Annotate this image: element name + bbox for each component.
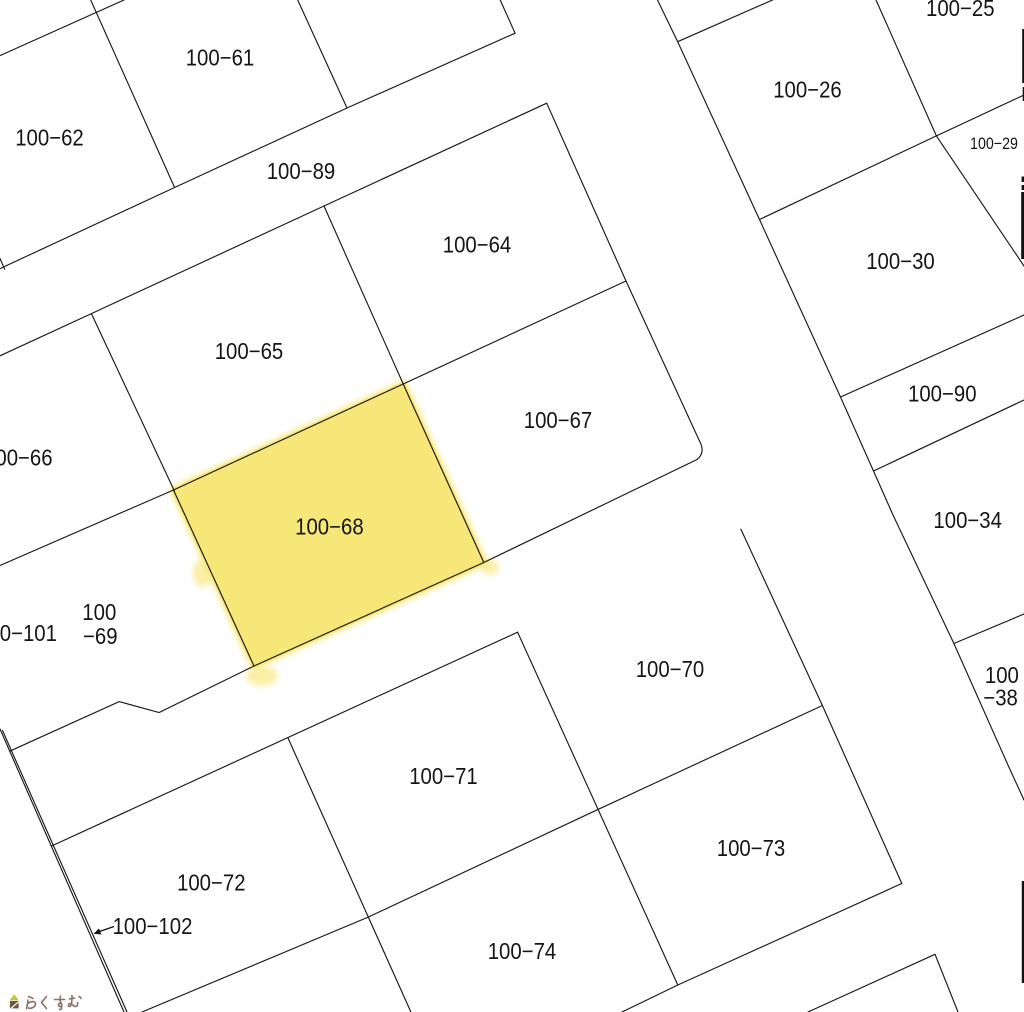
- svg-text:100−66: 100−66: [0, 445, 53, 471]
- svg-text:100−29: 100−29: [970, 135, 1018, 153]
- svg-text:100−26: 100−26: [773, 77, 842, 103]
- svg-text:100−30: 100−30: [866, 248, 935, 274]
- svg-text:100−68: 100−68: [295, 514, 364, 540]
- svg-text:−69: −69: [83, 623, 118, 649]
- svg-text:100−71: 100−71: [409, 763, 478, 789]
- svg-text:100−73: 100−73: [717, 835, 786, 861]
- svg-text:100−67: 100−67: [524, 407, 593, 433]
- svg-text:100−89: 100−89: [267, 158, 336, 184]
- svg-text:100−74: 100−74: [488, 938, 557, 964]
- svg-text:−38: −38: [983, 684, 1018, 710]
- svg-text:100−61: 100−61: [186, 45, 255, 71]
- svg-text:100: 100: [82, 599, 116, 625]
- svg-text:100−101: 100−101: [0, 620, 57, 646]
- svg-text:100−72: 100−72: [177, 870, 246, 896]
- svg-text:100−65: 100−65: [215, 338, 284, 364]
- svg-text:100−25: 100−25: [926, 0, 995, 21]
- svg-text:100−34: 100−34: [933, 507, 1002, 533]
- svg-text:100−64: 100−64: [443, 232, 512, 258]
- svg-text:100−102: 100−102: [113, 913, 193, 939]
- svg-text:100−70: 100−70: [636, 656, 705, 682]
- svg-text:100−62: 100−62: [15, 125, 84, 151]
- svg-text:100−90: 100−90: [908, 381, 977, 407]
